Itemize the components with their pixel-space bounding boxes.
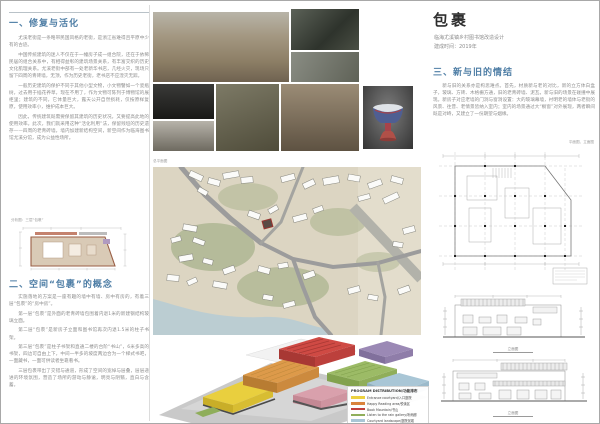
legend-label: Courtyard landscape/庭院景观	[367, 418, 414, 423]
legend-swatch-reading	[351, 402, 365, 405]
elevation-drawing-south	[433, 293, 594, 345]
legend-row: Book Mountain/书山	[351, 407, 425, 412]
poster-page: 一、修复与活化 尤溪老街是一条略带民国风格的老街，是浙江省难得且平原中少有的古迹…	[0, 0, 600, 424]
paragraph: 实施落地的方案是一座有趣的墙中有墙、房中有房的，有着三层“包裹”的“房中房”。	[9, 294, 149, 308]
paragraph: 第三层“包裹”是柱子书架和直通二楼的台阶“书山”，6米多高的书架，四边可自由上下…	[9, 344, 149, 365]
section1-body: 尤溪老街是一条略带民国风格的老街，是浙江省难得且平原中少有的古迹。 中国传统建筑…	[9, 35, 149, 145]
legend-row: Entrance courtyard/入口庭院	[351, 395, 425, 400]
paragraph: 三层包裹带出了交错与通道，形成了空间的宽绰与层叠，层层递进的环境氛围，营造了场所…	[9, 368, 149, 389]
photo-alley-dark	[291, 9, 359, 50]
legend-swatch-gallery	[351, 414, 365, 417]
legend-row: Happy Reading area/悦读区	[351, 401, 425, 406]
legend-label: Entrance courtyard/入口庭院	[367, 395, 412, 400]
section1-heading: 一、修复与活化	[9, 16, 79, 29]
paragraph: 第二层“包裹”是新房子立面和图书馆再次内退1.5米的柱子书架。	[9, 327, 149, 341]
photo-ruined-wall	[291, 52, 359, 82]
section3-heading: 三、新与旧的情结	[433, 65, 513, 78]
legend-label: Happy Reading area/悦读区	[367, 401, 410, 406]
photo-street-stalls	[281, 84, 359, 151]
legend-row: Courtyard landscape/庭院景观	[351, 418, 425, 423]
site-plan-label: 总平面图	[153, 159, 167, 164]
site-plan-map	[153, 167, 421, 335]
photo-courtyard-tree	[216, 84, 279, 151]
paragraph: 新与旧的关系亦是构思难点。首先，材质新与老的对比，新的立方体白盒子，玻璃、方砖、…	[433, 83, 595, 119]
legend-swatch-courtyard	[351, 419, 365, 422]
legend-swatch-bookmountain	[351, 408, 365, 411]
legend-label: Book Mountain/书山	[367, 407, 398, 412]
section3-body: 新与旧的关系亦是构思难点。首先，材质新与老的对比，新的立方体白盒子，玻璃、方砖、…	[433, 83, 595, 121]
section2-body: 实施落地的方案是一座有趣的墙中有墙、房中有房的，有着三层“包裹”的“房中房”。 …	[9, 294, 149, 392]
drawings-label: 平面图、立面图	[501, 140, 594, 145]
elevation2-caption: 立面图	[493, 411, 533, 417]
legend-swatch-entrance	[351, 396, 365, 399]
legend-title: PROGRAM DISTRIBUTION/功能排布	[351, 389, 425, 394]
paragraph: 中国传统建筑的迷人不仅在于一幢房子成一组合院，还在于依稀民居的组合关系中，有相得…	[9, 52, 149, 80]
elevation1-caption: 立面图	[493, 347, 533, 353]
photo-porcelain-bowl	[363, 86, 413, 149]
photo-curved-eaves	[153, 121, 214, 151]
column-divider	[149, 5, 150, 421]
photo-old-street-bridge	[153, 12, 289, 82]
paragraph: 一般历史建筑的保护不同于其他小型文物，小文物譬如一个瓷瓶树，过去用于插花养草，现…	[9, 83, 149, 111]
elevation-drawing-north	[433, 357, 594, 409]
paragraph: 因此，传统建筑既需要保留其建筑的历史状况，又要提高此地的使用效率。此次，我们就采…	[9, 114, 149, 142]
photo-doorway-interior	[153, 84, 214, 119]
analysis-diagram-label: 分析图：三层“包裹”	[11, 218, 43, 223]
project-subtitle: 临海尤溪镇乡村图书馆改造设计	[434, 34, 504, 41]
legend-label: Listen to the rain gallery/听雨廊	[367, 412, 417, 417]
left-top-rule	[9, 12, 149, 13]
wrap-analysis-plan-diagram	[15, 224, 131, 272]
paragraph: 第一层“包裹”是外面的老青砖墙包围着内退1米的新建钢结构玻璃立面。	[9, 311, 149, 325]
section2-heading: 二、空间“包裹”的概念	[9, 277, 113, 290]
floor-plan-drawing	[433, 148, 594, 289]
project-title: 包裹	[433, 9, 469, 30]
paragraph: 尤溪老街是一条略带民国风格的老街，是浙江省难得且平原中少有的古迹。	[9, 35, 149, 49]
program-legend: PROGRAM DISTRIBUTION/功能排布 Entrance court…	[347, 386, 429, 424]
porcelain-bowl-shape	[363, 86, 413, 149]
completion-date: 建成时间：2019年	[434, 43, 477, 50]
legend-row: Listen to the rain gallery/听雨廊	[351, 412, 425, 417]
